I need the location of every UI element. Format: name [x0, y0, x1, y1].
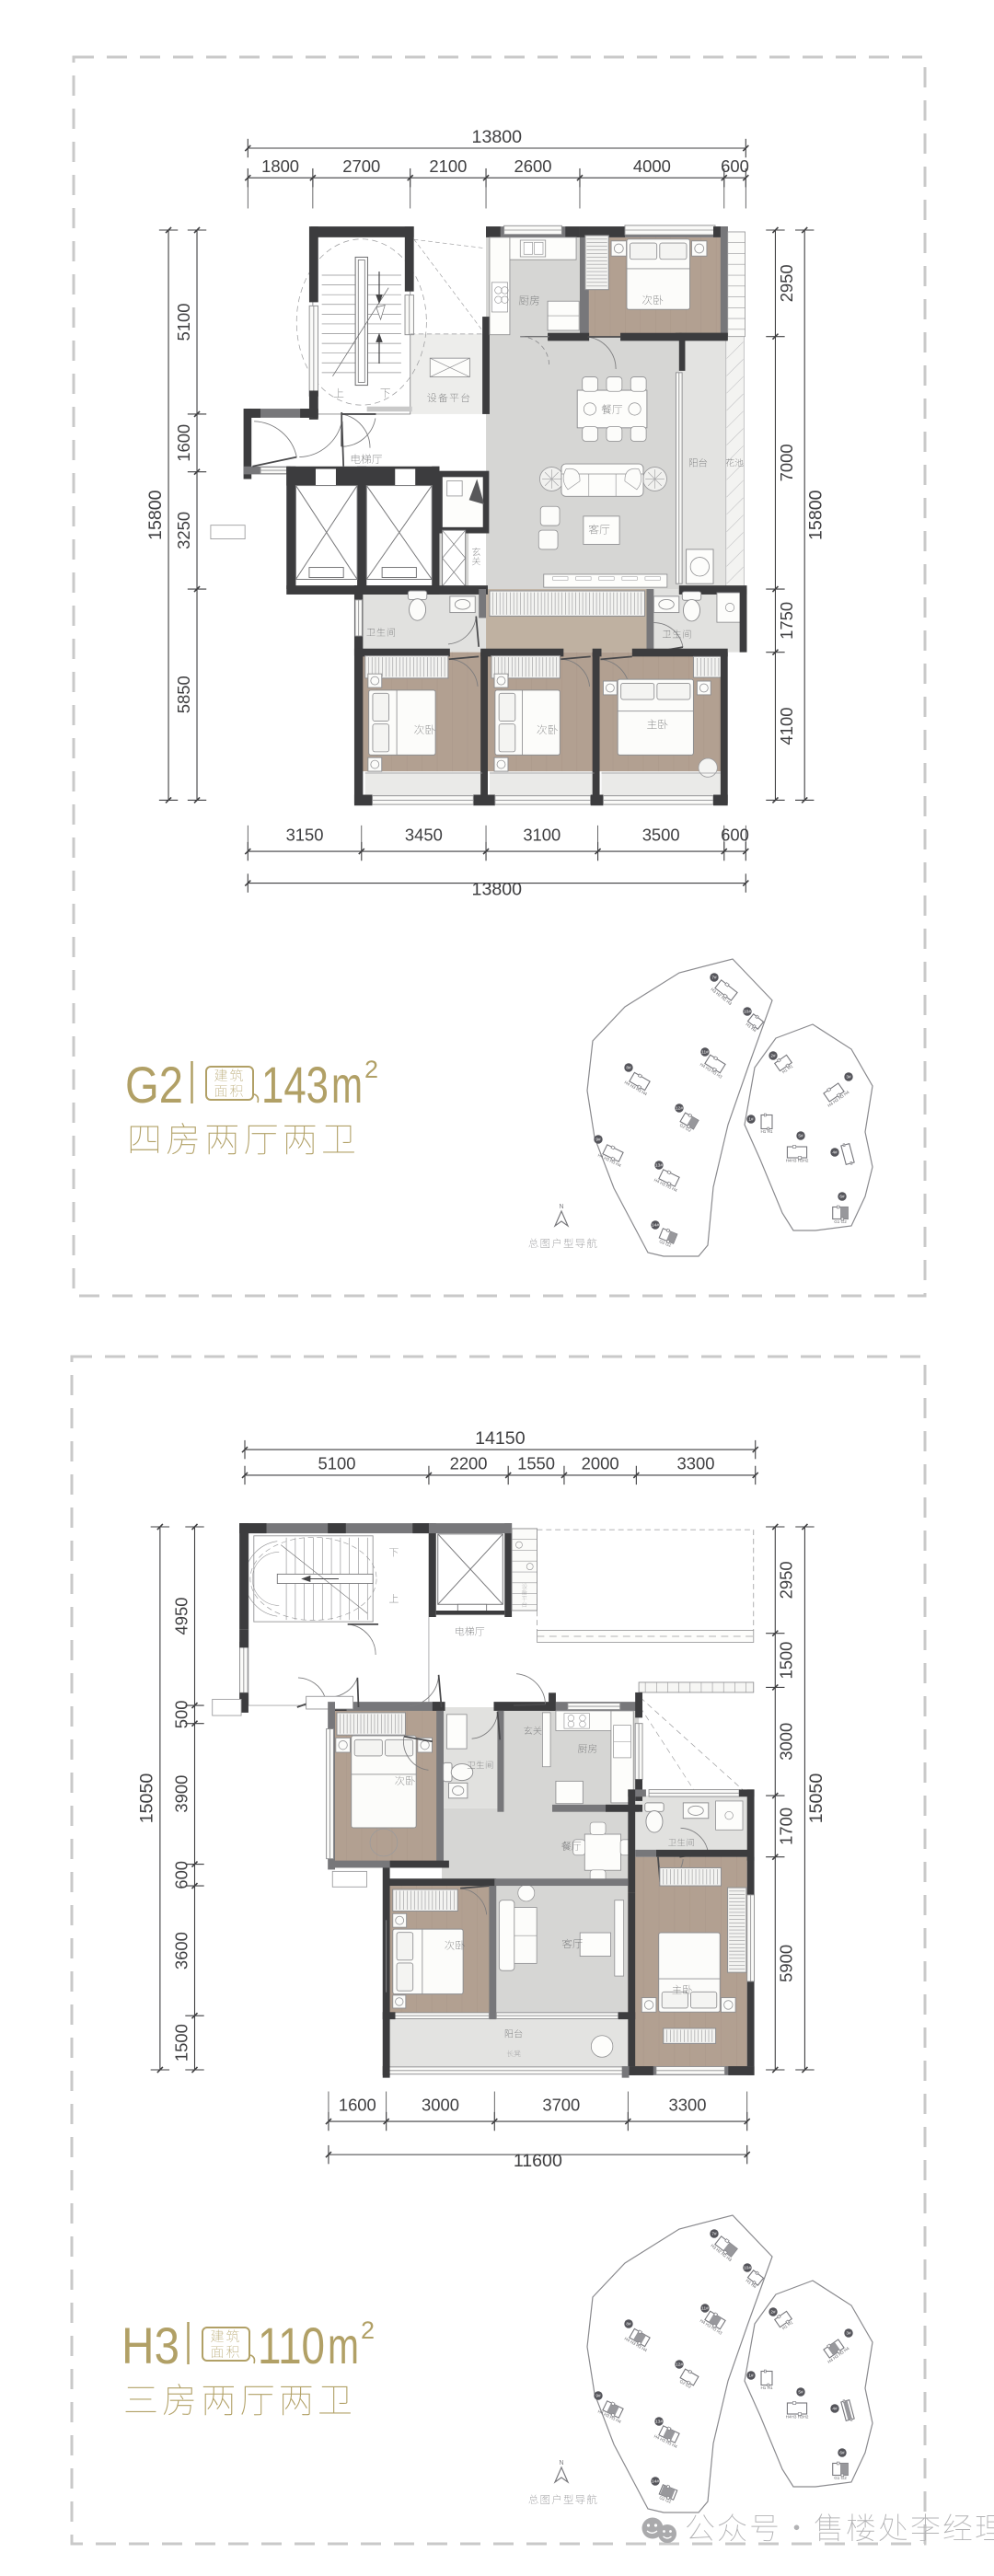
svg-text:G1 G2: G1 G2 — [834, 2476, 847, 2480]
svg-text:11#: 11# — [701, 2306, 709, 2312]
svg-text:600: 600 — [721, 825, 749, 844]
svg-text:5#: 5# — [798, 2390, 803, 2396]
svg-text:4#: 4# — [832, 2407, 838, 2412]
svg-text:3500: 3500 — [642, 825, 680, 844]
svg-text:3600: 3600 — [171, 1932, 191, 1970]
svg-text:13800: 13800 — [472, 880, 523, 900]
svg-text:1750: 1750 — [777, 602, 796, 640]
svg-text:2000: 2000 — [582, 1454, 619, 1473]
svg-text:4000: 4000 — [633, 156, 671, 176]
svg-text:15050: 15050 — [806, 1773, 826, 1824]
svg-text:12#: 12# — [676, 1106, 683, 1112]
svg-text:H1 H1: H1 H1 — [760, 1129, 772, 1134]
svg-text:1600: 1600 — [339, 2095, 376, 2114]
svg-text:8#: 8# — [626, 1066, 631, 1071]
svg-text:3000: 3000 — [422, 2095, 459, 2114]
svg-text:2950: 2950 — [777, 1561, 796, 1599]
svg-text:1500: 1500 — [777, 1642, 796, 1680]
svg-text:3250: 3250 — [174, 512, 193, 549]
svg-text:600: 600 — [721, 156, 749, 176]
svg-text:3300: 3300 — [669, 2095, 707, 2114]
svg-text:G2: G2 — [125, 1056, 183, 1114]
svg-text:110: 110 — [258, 2316, 325, 2374]
svg-text:G1 G2: G1 G2 — [834, 1219, 847, 1224]
svg-text:600: 600 — [171, 1861, 191, 1889]
svg-text:5100: 5100 — [174, 303, 193, 341]
svg-text:3300: 3300 — [677, 1454, 715, 1473]
svg-text:9#: 9# — [595, 1138, 601, 1143]
svg-text:3900: 3900 — [171, 1775, 191, 1813]
svg-text:3150: 3150 — [286, 825, 324, 844]
svg-text:1500: 1500 — [171, 2024, 191, 2062]
svg-text:5100: 5100 — [318, 1454, 355, 1473]
svg-text:15050: 15050 — [137, 1773, 157, 1824]
svg-text:4100: 4100 — [777, 708, 796, 745]
svg-text:10#: 10# — [744, 2266, 751, 2271]
svg-text:3#: 3# — [846, 2331, 851, 2337]
svg-text:9#: 9# — [595, 2394, 601, 2399]
svg-text:13#: 13# — [655, 1163, 663, 1169]
svg-text:15800: 15800 — [806, 490, 826, 540]
svg-text:5#: 5# — [798, 1134, 803, 1139]
svg-text:2#: 2# — [770, 2310, 776, 2316]
svg-text:11600: 11600 — [514, 2151, 562, 2171]
svg-text:11#: 11# — [701, 1050, 709, 1056]
svg-text:1#: 1# — [748, 1117, 754, 1123]
svg-text:6#: 6# — [839, 2451, 845, 2456]
svg-text:1600: 1600 — [174, 424, 193, 462]
svg-text:5850: 5850 — [174, 676, 193, 713]
svg-text:H4H3 H3H2: H4H3 H3H2 — [786, 2415, 809, 2420]
svg-text:H4H3 H3H2: H4H3 H3H2 — [786, 1159, 809, 1163]
svg-text:2600: 2600 — [514, 156, 552, 176]
svg-text:H3: H3 — [121, 2316, 179, 2374]
svg-text:7000: 7000 — [777, 444, 796, 481]
svg-text:3100: 3100 — [523, 825, 561, 844]
svg-text:H1 H1: H1 H1 — [760, 2385, 772, 2390]
svg-text:15800: 15800 — [145, 490, 166, 540]
svg-text:N: N — [559, 2460, 563, 2466]
svg-text:5900: 5900 — [777, 1945, 796, 1982]
svg-text:6#: 6# — [839, 1195, 845, 1200]
svg-text:8#: 8# — [626, 2322, 631, 2328]
svg-text:1700: 1700 — [777, 1808, 796, 1845]
svg-text:3700: 3700 — [542, 2095, 580, 2114]
svg-text:2200: 2200 — [450, 1454, 488, 1473]
svg-text:1800: 1800 — [261, 156, 299, 176]
svg-text:7#: 7# — [711, 976, 717, 981]
svg-text:2#: 2# — [770, 1054, 776, 1059]
svg-text:N: N — [559, 1204, 563, 1210]
svg-text:m: m — [331, 1056, 363, 1114]
svg-text:2700: 2700 — [342, 156, 380, 176]
svg-text:3000: 3000 — [777, 1723, 796, 1761]
svg-text:14#: 14# — [652, 2479, 659, 2485]
svg-text:2100: 2100 — [429, 156, 467, 176]
svg-text:14#: 14# — [652, 1223, 659, 1229]
svg-text:13800: 13800 — [472, 127, 523, 147]
svg-text:10#: 10# — [744, 1010, 751, 1015]
svg-text:12#: 12# — [676, 2362, 683, 2368]
svg-text:4#: 4# — [832, 1150, 838, 1156]
svg-text:1550: 1550 — [517, 1454, 555, 1473]
svg-text:7#: 7# — [711, 2232, 717, 2237]
svg-text:2: 2 — [364, 1056, 378, 1083]
svg-text:2: 2 — [361, 2316, 375, 2344]
svg-text:14150: 14150 — [475, 1428, 526, 1449]
svg-text:m: m — [328, 2316, 359, 2374]
svg-text:3#: 3# — [846, 1075, 851, 1080]
svg-text:1#: 1# — [748, 2374, 754, 2379]
svg-text:3450: 3450 — [405, 825, 443, 844]
svg-text:500: 500 — [171, 1700, 191, 1728]
svg-text:4950: 4950 — [171, 1598, 191, 1635]
svg-text:13#: 13# — [655, 2420, 663, 2425]
svg-text:2950: 2950 — [777, 264, 796, 302]
svg-text:143: 143 — [261, 1056, 329, 1114]
